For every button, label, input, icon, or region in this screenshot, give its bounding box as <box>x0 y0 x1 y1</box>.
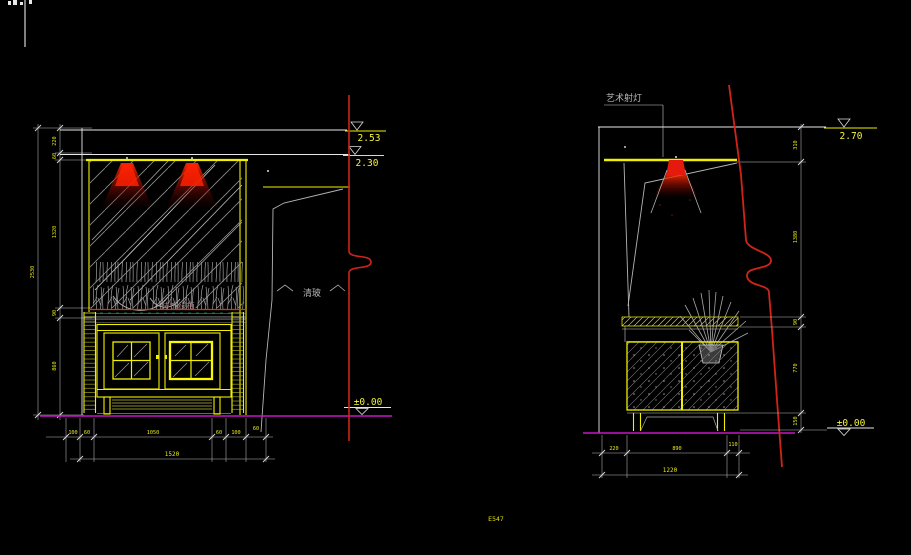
door-handle <box>165 355 168 359</box>
cad-drawing: 220 60 1320 90 860 2530 <box>0 0 911 555</box>
cabinet-left <box>97 325 231 415</box>
level-value: 2.70 <box>840 131 863 142</box>
plant-area-label: 装饰绿植 <box>161 301 196 312</box>
sheet-corner-note: E547 <box>488 515 504 523</box>
dim-total: 2530 <box>30 266 36 279</box>
right-vertical-dimension-chain: 310 1380 90 770 150 <box>740 124 806 433</box>
level-value: ±0.00 <box>354 397 383 408</box>
dim-value: 220 <box>609 446 618 452</box>
light-callout: 艺术射灯 <box>604 92 663 157</box>
dim-value: 110 <box>728 442 737 448</box>
left-vertical-dimension-chain: 220 60 1320 90 860 2530 <box>30 124 92 420</box>
cabinet-right <box>627 342 740 432</box>
light-label: 艺术射灯 <box>606 92 642 104</box>
dim-value: 150 <box>793 416 799 425</box>
level-marker-253: 2.53 <box>345 122 386 144</box>
dim-value: 1050 <box>147 430 160 436</box>
level-value: 2.53 <box>358 133 381 144</box>
dim-value: 60 <box>253 426 259 432</box>
dim-total: 1220 <box>663 467 678 474</box>
dim-value: 60 <box>52 153 58 159</box>
dim-total: 1520 <box>165 451 180 458</box>
left-elevation-drawing: 220 60 1320 90 860 2530 <box>30 95 392 462</box>
cabinet-base <box>97 397 231 414</box>
dim-value: 60 <box>84 430 90 436</box>
right-bottom-dimension-chain: 220 890 110 1220 <box>592 435 750 478</box>
door-handle <box>156 355 159 359</box>
cabinet-door-left <box>104 333 159 389</box>
level-value: ±0.00 <box>837 418 866 429</box>
dim-value: 100 <box>231 430 240 436</box>
dim-value: 100 <box>68 430 77 436</box>
dim-value: 1320 <box>52 226 58 239</box>
left-bottom-dimension-chain: 100 60 1050 60 100 60 1520 <box>46 418 275 462</box>
dim-value: 770 <box>793 363 799 372</box>
planting-band: 装饰绿植 <box>88 262 246 313</box>
dim-value: 310 <box>793 140 799 149</box>
level-marker-zero-left: ±0.00 <box>344 397 391 415</box>
dim-value: 90 <box>793 319 799 325</box>
cad-viewport[interactable]: 220 60 1320 90 860 2530 <box>0 0 911 555</box>
level-marker-270: 2.70 <box>824 119 877 142</box>
pendant-lamp <box>651 156 701 216</box>
dim-value: 60 <box>216 430 222 436</box>
glass-note-label: 清玻 <box>303 287 321 299</box>
dim-value: 890 <box>672 446 681 452</box>
cabinet-door-right <box>165 333 220 389</box>
dim-value: 860 <box>52 361 58 370</box>
level-value: 2.30 <box>356 158 379 169</box>
right-elevation-drawing: 艺术射灯 2.70 <box>583 85 877 478</box>
dim-value: 220 <box>52 136 58 145</box>
wall-section-profile: 清玻 <box>261 170 350 432</box>
dim-value: 1380 <box>793 231 799 244</box>
clipped-drawing-fragment <box>8 0 32 47</box>
dim-value: 90 <box>52 310 58 316</box>
